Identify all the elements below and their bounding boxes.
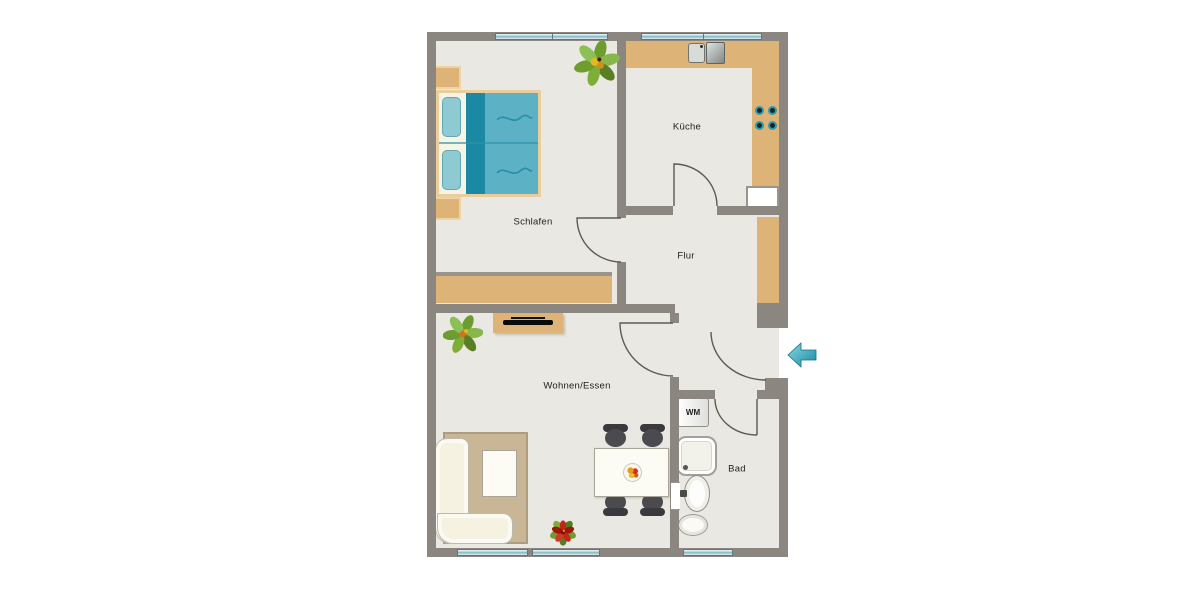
shower <box>676 436 717 476</box>
floorplan-canvas: WM <box>0 0 1200 600</box>
kitchen-sink <box>688 42 726 64</box>
kitchen-door-arc <box>674 164 717 206</box>
room-label-flur: Flur <box>677 251 694 262</box>
apartment-floorplan: WM <box>427 32 788 557</box>
wall-bath-north-a <box>679 390 715 399</box>
dining-chair <box>639 424 666 447</box>
window-mullion <box>703 34 704 39</box>
wall-right-upper <box>779 32 788 328</box>
chair-back <box>603 508 628 516</box>
red-flower-icon <box>547 516 579 548</box>
window-mullion <box>552 34 553 39</box>
bedroom-door-arc <box>577 218 621 262</box>
stove-burner <box>768 121 777 130</box>
bath-window <box>683 549 733 556</box>
plant-icon <box>574 40 620 86</box>
sofa-bottom-section <box>437 513 513 544</box>
bed-mattress-split <box>439 142 538 144</box>
wall-living-stub <box>670 313 679 323</box>
wall-kitchen-south-b <box>717 206 779 215</box>
bed-pillow-2 <box>442 150 461 190</box>
nightstand-bottom <box>433 197 461 220</box>
plant-red-flower <box>547 516 579 548</box>
room-label-bad: Bad <box>728 464 746 475</box>
bedroom-window <box>495 33 608 40</box>
washing-machine: WM <box>677 398 709 427</box>
kitchen-window <box>641 33 762 40</box>
room-label-schlafen: Schlafen <box>514 217 553 228</box>
stove-burner <box>755 121 764 130</box>
room-label-kueche: Küche <box>673 122 701 133</box>
chair-seat <box>605 429 626 447</box>
double-bed <box>436 90 541 197</box>
bathroom-sink <box>684 475 710 512</box>
bedroom-wardrobe <box>436 272 612 303</box>
dining-table <box>594 448 669 497</box>
wall-entry-stub-b <box>765 378 788 392</box>
fruit-bowl-icon <box>624 464 641 481</box>
sideboard <box>493 313 563 333</box>
sink-basin-right <box>706 42 725 64</box>
washing-machine-label: WM <box>686 408 700 417</box>
toilet <box>678 514 708 536</box>
entry-door-arc <box>711 332 766 380</box>
wall-right-lower <box>779 378 788 557</box>
wall-living-north <box>436 304 675 313</box>
bathroom-faucet <box>680 490 687 497</box>
coffee-table <box>482 450 517 497</box>
tv-stand-line <box>511 317 545 319</box>
wall-entry-stub-a <box>757 303 788 328</box>
hallway-wardrobe <box>757 217 779 303</box>
shower-drain <box>683 465 688 470</box>
stove-cooktop <box>753 103 779 133</box>
wall-left <box>427 32 436 557</box>
chair-seat <box>642 429 663 447</box>
kitchen-appliance <box>746 186 779 208</box>
living-window-2 <box>532 549 600 556</box>
dining-chair <box>602 424 629 447</box>
living-door-arc <box>620 323 673 376</box>
sink-faucet <box>700 45 703 48</box>
wall-kitchen-south-a <box>626 206 673 215</box>
tv-icon <box>503 320 553 325</box>
plant-bedroom <box>574 40 620 86</box>
stove-burner <box>768 106 777 115</box>
bath-sink-niche <box>671 482 680 510</box>
nightstand-top <box>433 66 461 89</box>
room-label-wohnen-essen: Wohnen/Essen <box>543 381 610 392</box>
wall-bath-west <box>670 377 679 548</box>
plant-living <box>443 314 483 354</box>
stove-burner <box>755 106 764 115</box>
entry-arrow-icon <box>787 341 817 369</box>
bath-door-arc <box>715 399 757 435</box>
living-window-1 <box>457 549 528 556</box>
bed-pillow-1 <box>442 97 461 137</box>
plant-icon <box>443 314 483 354</box>
chair-back <box>640 508 665 516</box>
